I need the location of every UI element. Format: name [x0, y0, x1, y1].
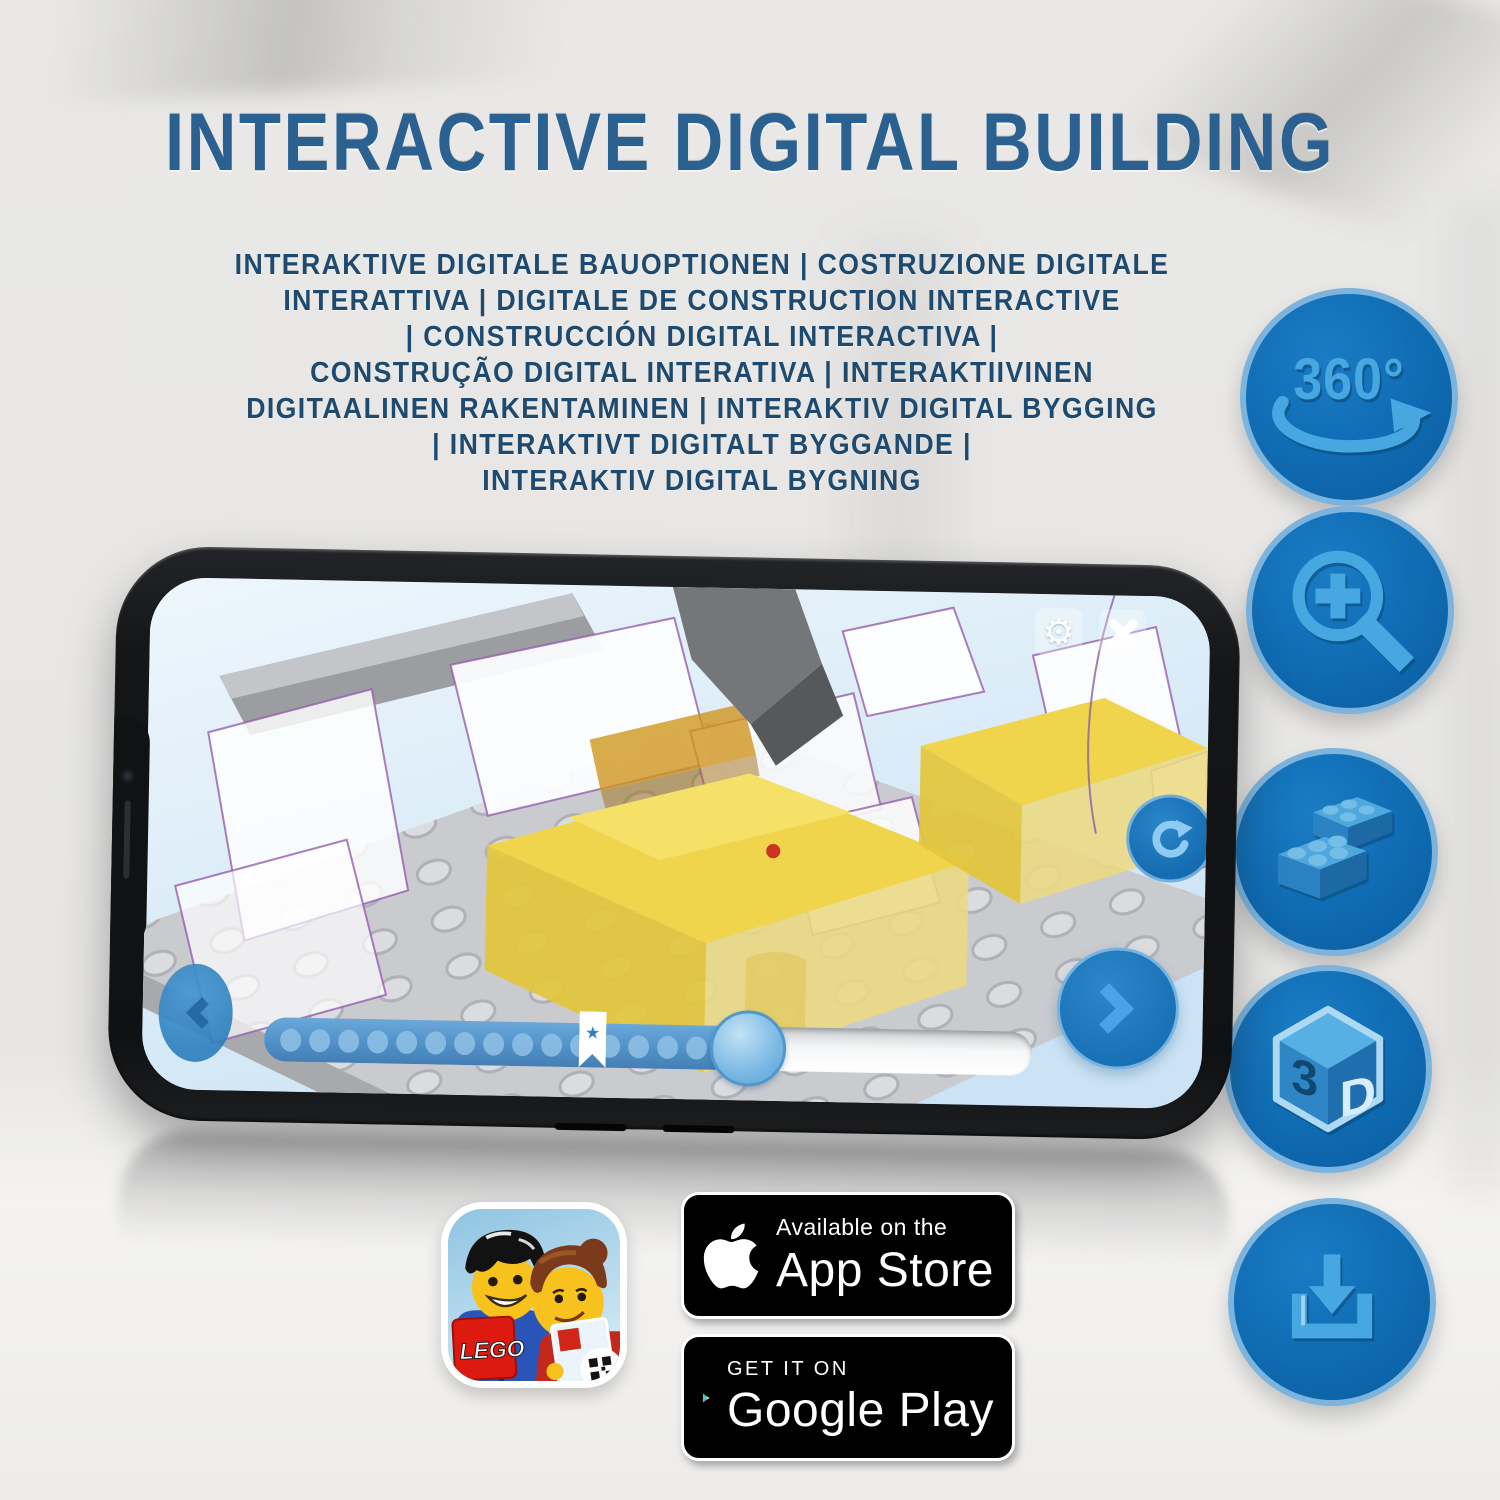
- google-play-badge[interactable]: GET IT ON Google Play: [681, 1334, 1015, 1461]
- chevron-left-icon: [178, 990, 213, 1037]
- feature-bricks: [1230, 748, 1438, 956]
- phone-mockup: ⚙: [107, 545, 1242, 1140]
- lego-app-icon-art: LEGO: [448, 1209, 620, 1381]
- chevron-right-icon: [1093, 978, 1142, 1039]
- progress-fill: [264, 1017, 749, 1070]
- lego-logo-text: LEGO: [459, 1335, 525, 1364]
- feature-360-rotation: 360°: [1240, 288, 1458, 506]
- close-button[interactable]: [1099, 609, 1147, 657]
- front-camera: [122, 770, 133, 781]
- app-store-badge[interactable]: Available on the App Store: [681, 1192, 1015, 1319]
- volume-button: [554, 1123, 626, 1131]
- settings-button[interactable]: ⚙: [1035, 608, 1083, 656]
- subtitle-line: | CONSTRUCCIÓN DIGITAL INTERACTIVA |: [130, 319, 1274, 355]
- close-icon: [1107, 618, 1138, 649]
- 3d-cube-icon: 3 D: [1259, 1000, 1397, 1138]
- subtitle-line: INTERATTIVA | DIGITALE DE CONSTRUCTION I…: [130, 283, 1274, 319]
- subtitle-line: INTERAKTIV DIGITAL BYGNING: [130, 463, 1274, 499]
- gear-icon: ⚙: [1042, 614, 1075, 651]
- phone-screen: ⚙: [141, 577, 1211, 1109]
- page-title: INTERACTIVE DIGITAL BUILDING: [120, 96, 1380, 190]
- subtitle-line: | INTERAKTIVT DIGITALT BYGGANDE |: [130, 427, 1274, 463]
- lego-app-icon[interactable]: LEGO: [441, 1202, 627, 1388]
- apple-icon: [702, 1219, 760, 1293]
- cube-3-label: 3: [1291, 1048, 1318, 1108]
- magnifier-plus-icon: [1280, 540, 1420, 680]
- volume-button: [662, 1125, 734, 1133]
- google-play-name: Google Play: [727, 1383, 994, 1438]
- cube-d-label: D: [1340, 1063, 1377, 1129]
- background-shadow-band: [1450, 200, 1500, 1200]
- phone-notch: [110, 716, 150, 949]
- progress-dots: [280, 1028, 748, 1060]
- lego-app-promo-poster: INTERACTIVE DIGITAL BUILDING INTERAKTIVE…: [0, 0, 1500, 1500]
- earpiece-speaker: [123, 800, 130, 878]
- subtitle-line: DIGITAALINEN RAKENTAMINEN | INTERAKTIV D…: [130, 391, 1274, 427]
- subtitle-line: INTERAKTIVE DIGITALE BAUOPTIONEN | COSTR…: [130, 247, 1274, 283]
- marble-vein: [0, 0, 723, 110]
- download-icon: [1262, 1232, 1402, 1372]
- rotate-arrow-icon: [1264, 395, 1434, 457]
- multilingual-subtitle: INTERAKTIVE DIGITALE BAUOPTIONEN | COSTR…: [130, 247, 1274, 499]
- feature-download: [1228, 1198, 1436, 1406]
- google-play-tagline: GET IT ON: [727, 1358, 994, 1381]
- app-store-name: App Store: [776, 1243, 994, 1298]
- feature-3d-view: 3 D: [1224, 965, 1432, 1173]
- lego-bricks-icon: [1264, 782, 1404, 922]
- app-store-tagline: Available on the: [776, 1214, 994, 1241]
- google-play-icon: [702, 1362, 711, 1434]
- subtitle-line: CONSTRUÇÃO DIGITAL INTERATIVA | INTERAKT…: [130, 355, 1274, 391]
- feature-zoom: [1246, 506, 1454, 714]
- phone-reflection: [117, 1129, 1232, 1300]
- rotate-reset-icon: [1146, 814, 1195, 863]
